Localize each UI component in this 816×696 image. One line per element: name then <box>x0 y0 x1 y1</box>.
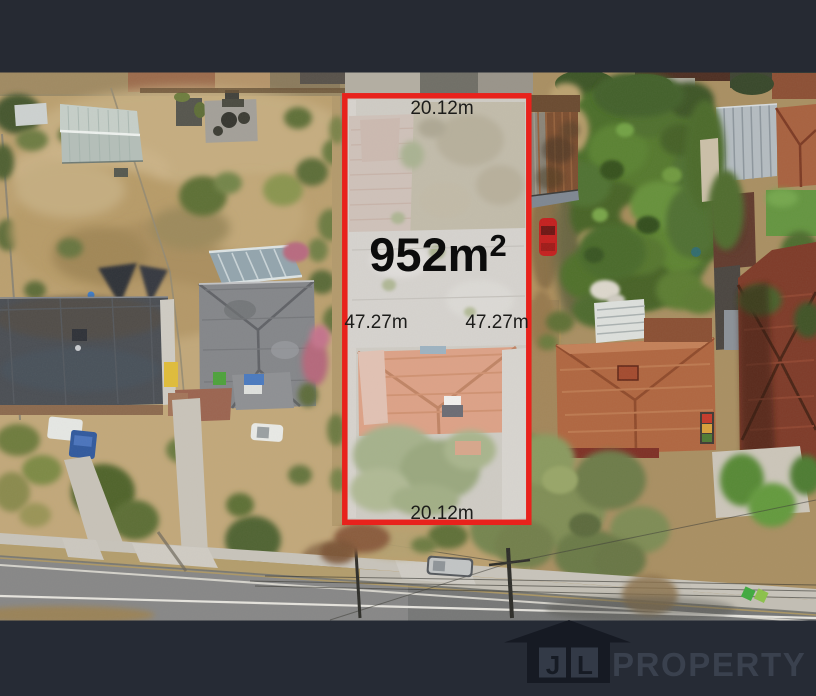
svg-text:47.27m: 47.27m <box>344 312 407 333</box>
svg-text:PROPERTY: PROPERTY <box>612 646 806 683</box>
svg-text:20.12m: 20.12m <box>410 503 473 524</box>
svg-text:J: J <box>546 650 560 680</box>
svg-text:952m2: 952m2 <box>369 228 506 281</box>
svg-text:47.27m: 47.27m <box>465 312 528 333</box>
svg-text:L: L <box>577 650 593 680</box>
svg-text:20.12m: 20.12m <box>410 98 473 119</box>
